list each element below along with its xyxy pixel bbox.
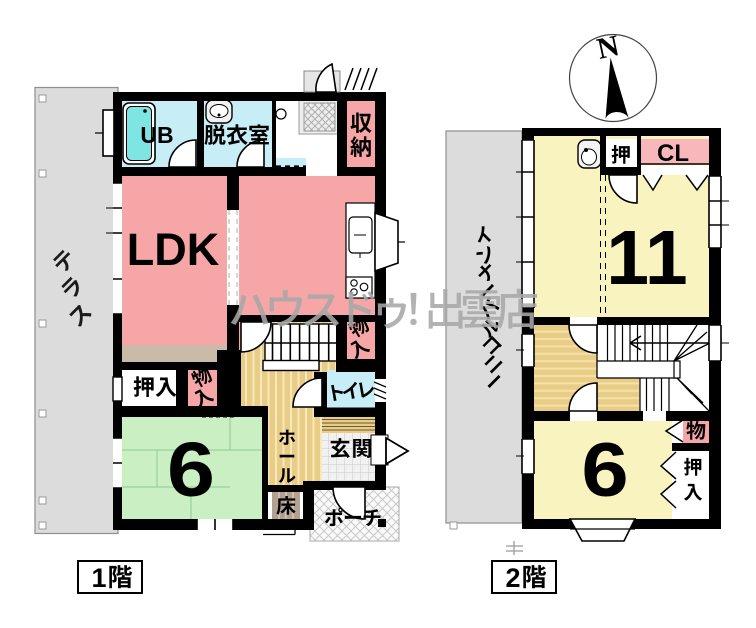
svg-text:11: 11 <box>606 215 687 301</box>
svg-text:6: 6 <box>167 427 215 513</box>
svg-text:2: 2 <box>505 563 520 593</box>
svg-text:1: 1 <box>91 563 106 593</box>
svg-text:LDK: LDK <box>127 224 220 275</box>
svg-text:CL: CL <box>657 140 689 167</box>
svg-text:UB: UB <box>140 122 173 148</box>
svg-text:6: 6 <box>581 428 628 513</box>
